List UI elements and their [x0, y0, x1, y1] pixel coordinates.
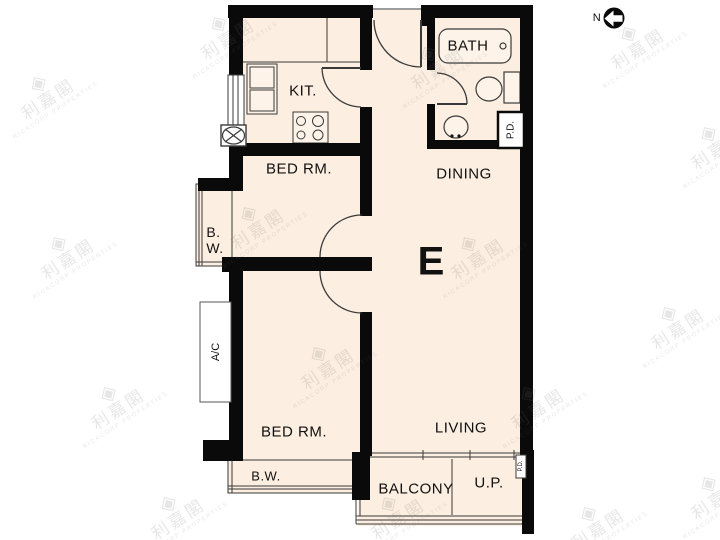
pipe-duct-living-label: P.D.: [518, 461, 524, 472]
dining-label: DINING: [436, 166, 492, 183]
utility-platform-label: U.P.: [474, 475, 503, 492]
kitchen-sink-icon: [247, 64, 277, 114]
bath-label: BATH: [448, 38, 489, 55]
bedroom1-label: BED RM.: [266, 161, 332, 178]
pipe-duct-bath-label: P.D.: [506, 121, 517, 139]
compass-icon: [604, 8, 625, 29]
drain-symbol-icon: [221, 125, 246, 146]
floor-plan-drawing: [0, 0, 720, 540]
ac-label: A/C: [210, 343, 222, 361]
washbasin-icon: [444, 116, 468, 138]
unit-letter-label: E: [418, 240, 445, 285]
bedroom2-label: BED RM.: [261, 424, 327, 441]
floor-plan-canvas: KIT. BATH BED RM. DINING B.W. E A/C BED …: [0, 0, 720, 540]
balcony-label: BALCONY: [378, 481, 453, 498]
living-label: LIVING: [435, 420, 487, 437]
kitchen-window-icon: [228, 75, 244, 125]
bay-window2-label: B.W.: [251, 469, 280, 484]
kitchen-label: KIT.: [289, 83, 317, 100]
north-label: N: [593, 12, 601, 24]
bay-window1-label: B.W.: [206, 224, 223, 256]
stove-icon: [293, 112, 328, 143]
